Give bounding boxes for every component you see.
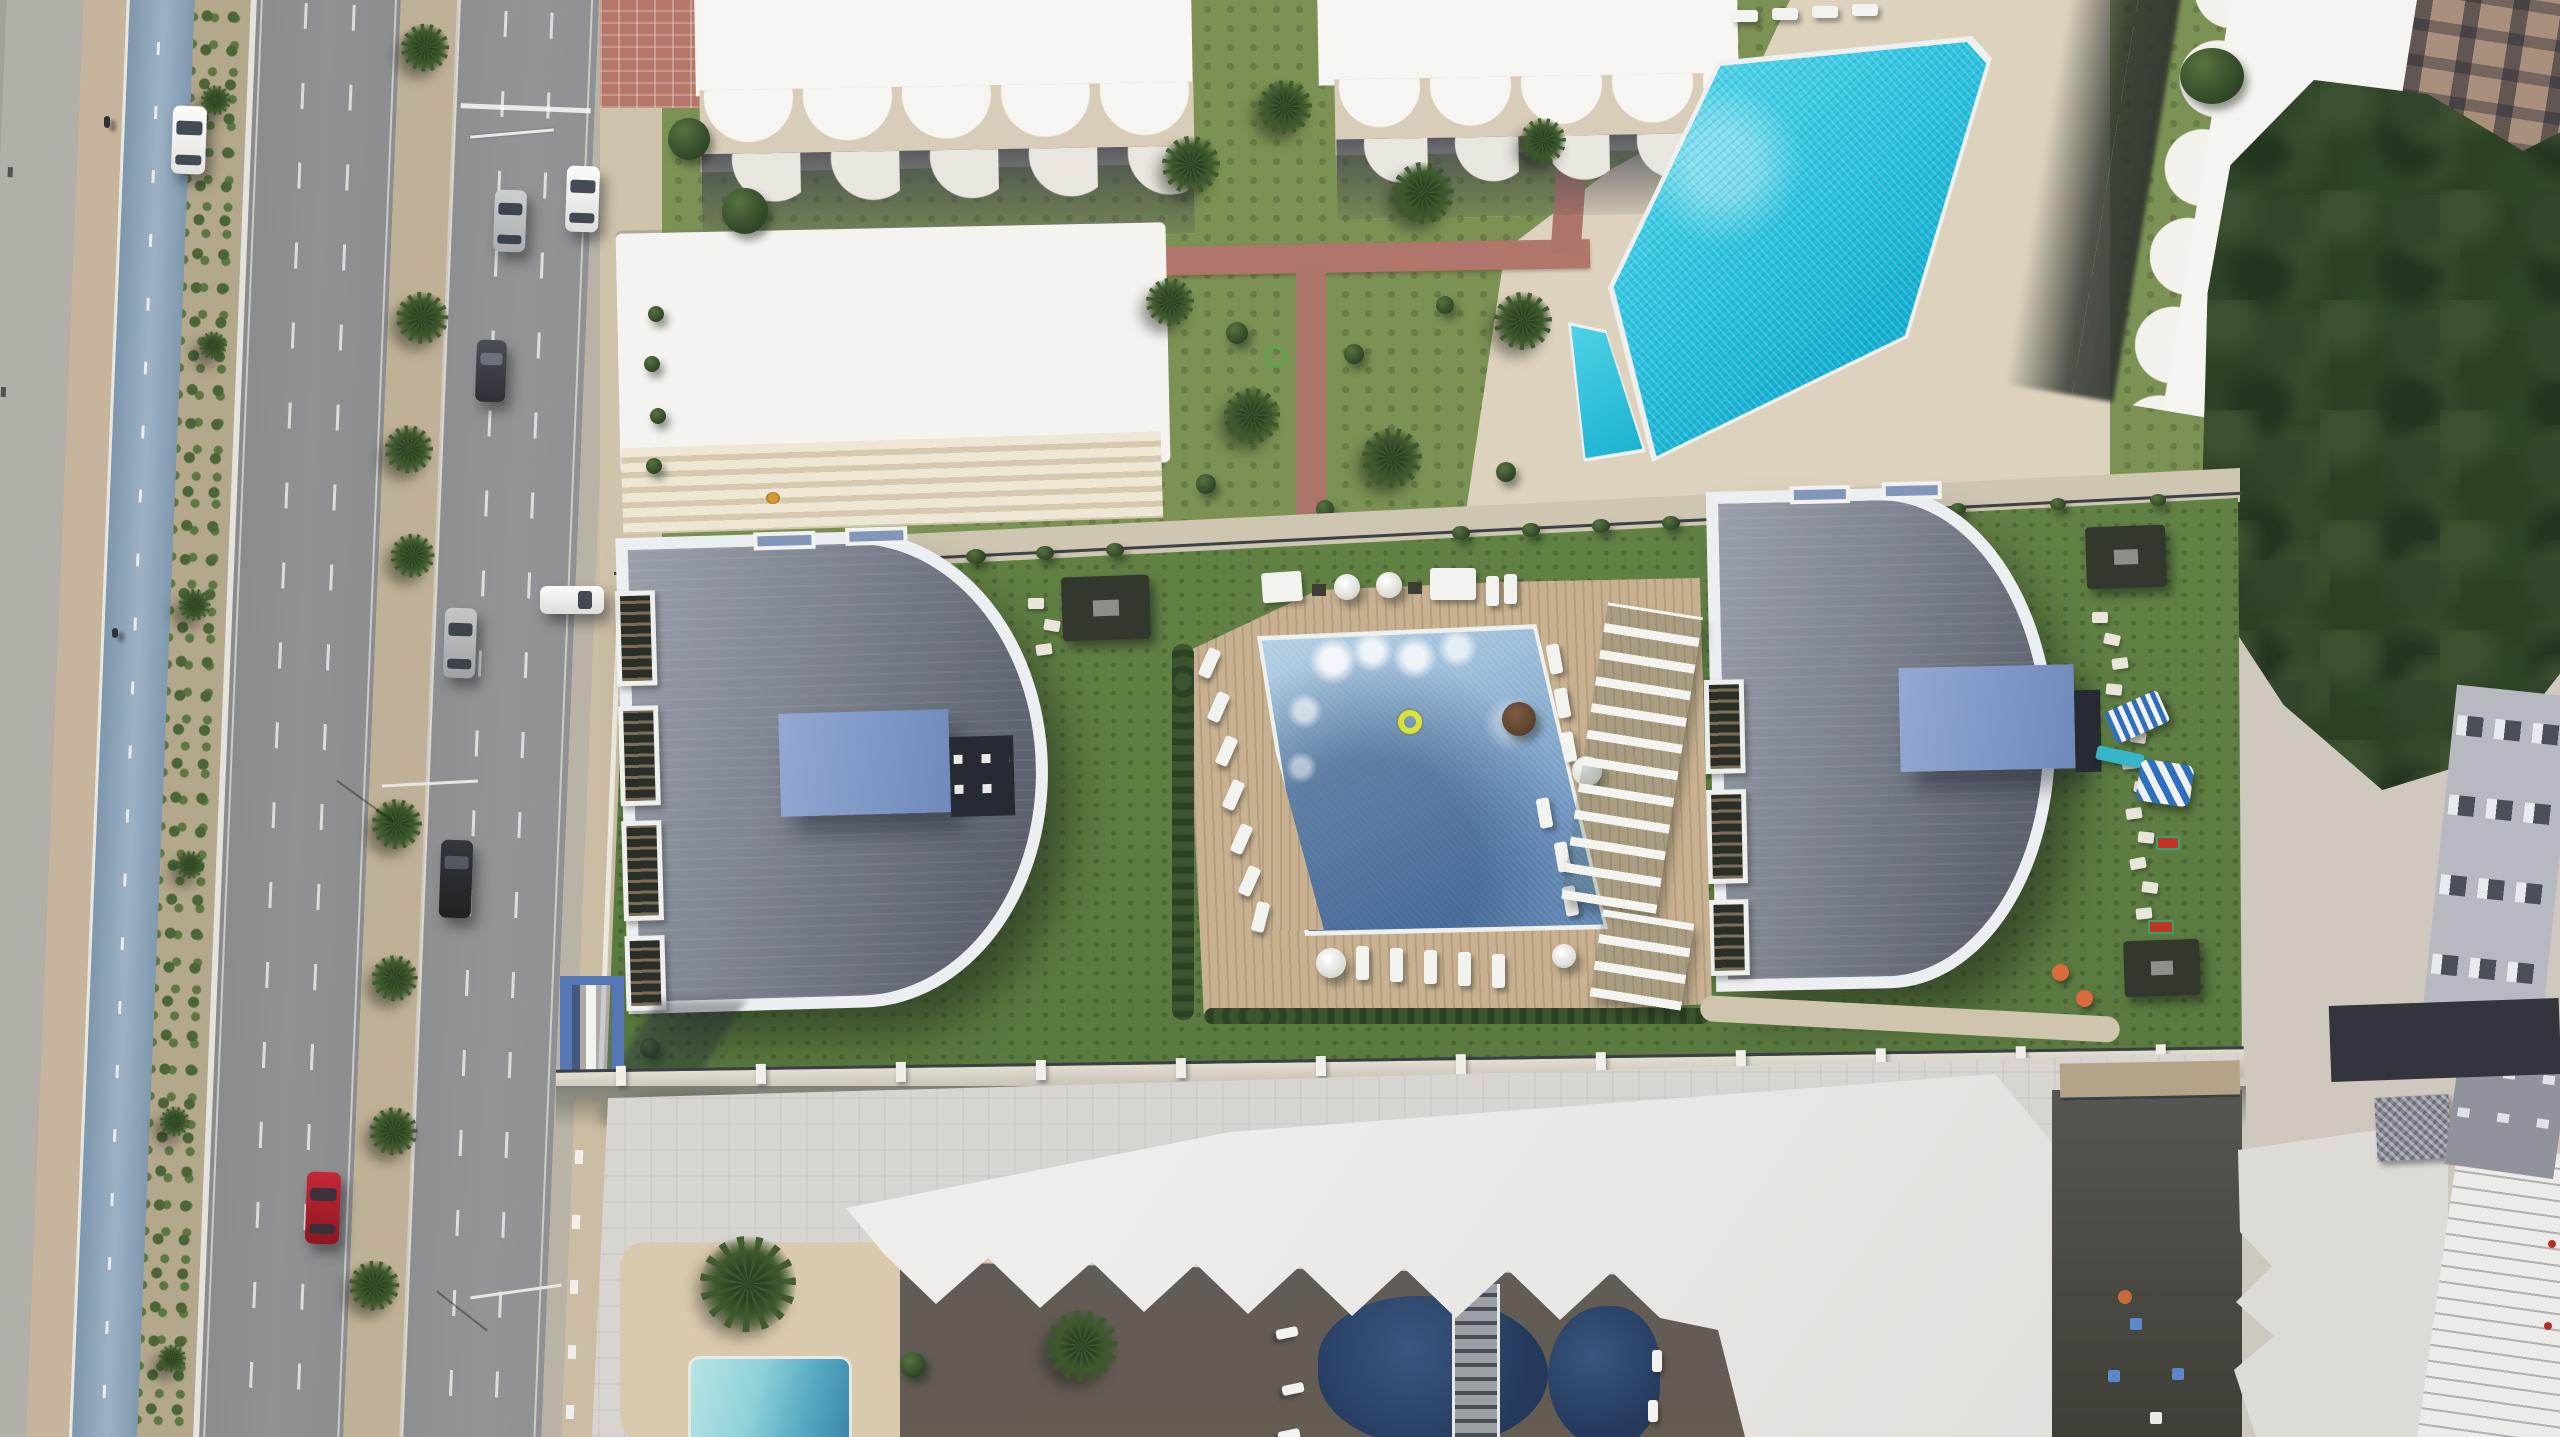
- car-glass: [447, 659, 471, 670]
- car-glass: [497, 235, 521, 245]
- lounger: [1424, 950, 1437, 984]
- palm-icon: [1392, 162, 1454, 224]
- wall-post: [896, 1062, 906, 1082]
- window-glass: [630, 940, 662, 1006]
- bush: [644, 356, 660, 372]
- cafe-table: [2108, 1370, 2120, 1382]
- hedge-bush: [1452, 526, 1470, 540]
- bush: [1436, 296, 1454, 314]
- car-white-parked-entrance: [540, 586, 604, 614]
- bench-red: [2156, 836, 2180, 850]
- car-black-driving: [439, 839, 474, 918]
- west-skylight: [845, 526, 907, 546]
- facade-windows: [2439, 874, 2552, 906]
- lounger: [1356, 946, 1369, 980]
- pergola-shades: [1590, 909, 1695, 1010]
- parasol: [1552, 944, 1576, 968]
- window-well: [1708, 899, 1750, 976]
- window-glass: [1711, 794, 1743, 879]
- bench-red: [2148, 920, 2174, 934]
- pergola-table: [2114, 549, 2139, 565]
- hedge-bush: [1592, 519, 1610, 533]
- hedge-bush: [1106, 543, 1124, 557]
- round-daybed: [1376, 572, 1402, 598]
- car-glass: [480, 353, 502, 366]
- stepping-stone: [1028, 598, 1044, 609]
- stepping-stone: [2092, 612, 2108, 623]
- stepping-stone: [2137, 831, 2154, 844]
- palm-icon: [1046, 1310, 1118, 1382]
- wicker-daybed: [1502, 702, 1536, 736]
- window-glass: [623, 710, 656, 801]
- kids-pool: [1556, 316, 1652, 466]
- car-silver-parked: [493, 189, 527, 252]
- aerial-photo: [0, 0, 2560, 1437]
- lounger: [1648, 1400, 1658, 1422]
- deck-table: [1312, 584, 1326, 596]
- stepping-stone: [2135, 907, 2152, 920]
- lounger: [1492, 954, 1505, 988]
- building-east: [1700, 476, 2096, 1004]
- lounger: [1812, 6, 1838, 18]
- curb-marker: [572, 1215, 580, 1229]
- cafe-table: [2172, 1368, 2184, 1380]
- pergola-east: [2085, 525, 2167, 590]
- building-b-steps: [621, 432, 1163, 535]
- garden-ring: [1264, 346, 1286, 368]
- stepping-stone: [2125, 807, 2142, 820]
- bush: [1196, 474, 1216, 494]
- window-well: [615, 590, 658, 686]
- flower-bed: [766, 492, 780, 504]
- cafe-table: [2130, 1318, 2142, 1330]
- stepping-stone: [2111, 657, 2128, 670]
- west-east-facade: [949, 735, 1015, 817]
- round-daybed: [1334, 574, 1360, 600]
- hedge-bush: [2150, 494, 2166, 506]
- kids-pool-water: [1560, 320, 1648, 462]
- hedge-strip-se: [2060, 1060, 2241, 1100]
- facade-windows: [2457, 1107, 2555, 1130]
- skylight-glass: [849, 530, 903, 542]
- window-well: [1706, 789, 1748, 884]
- south-kids-pool: [688, 1356, 852, 1437]
- bollard: [8, 167, 13, 177]
- pergola-south: [2123, 939, 2201, 998]
- pergola-west: [1061, 574, 1151, 641]
- pergola-table: [2151, 961, 2173, 976]
- palm-icon: [369, 1106, 419, 1156]
- pedestrian: [112, 628, 118, 638]
- east-skylight: [1790, 485, 1850, 504]
- cyclist: [104, 116, 110, 128]
- deck-table: [1408, 582, 1422, 594]
- lounger: [1458, 952, 1471, 986]
- window-well: [621, 820, 664, 921]
- east-east-facade: [2074, 690, 2102, 773]
- tree: [668, 118, 710, 160]
- car-silver-driving: [443, 607, 477, 678]
- car-glass: [444, 856, 468, 870]
- car-dark-parked: [475, 339, 507, 402]
- palm-icon: [1494, 292, 1552, 350]
- facade-windows: [2456, 715, 2560, 747]
- car-white-driving: [171, 105, 207, 174]
- east-dark-band: [2329, 998, 2560, 1082]
- wall-post: [1316, 1056, 1326, 1076]
- parasol: [1316, 948, 1346, 978]
- swim-ring: [1398, 710, 1422, 734]
- cafe-umbrella: [2118, 1290, 2132, 1304]
- stepping-stone: [2105, 683, 2122, 696]
- bush: [1344, 344, 1364, 364]
- red-marker: [2544, 1322, 2552, 1330]
- bush: [646, 458, 662, 474]
- palm-icon: [700, 1236, 796, 1332]
- wall-post: [616, 1066, 626, 1086]
- wall-post: [756, 1064, 766, 1084]
- car-glass: [176, 121, 202, 136]
- car-glass: [569, 213, 594, 224]
- bollard: [1, 387, 6, 397]
- skylight-glass: [757, 535, 811, 547]
- skylight-glass: [1886, 485, 1938, 496]
- bush: [900, 1352, 926, 1378]
- resort-pool-water: [1606, 36, 1994, 464]
- palm-icon: [1224, 388, 1280, 444]
- window-well: [1704, 679, 1746, 774]
- bush: [650, 408, 666, 424]
- skylight-glass: [1794, 489, 1846, 500]
- east-skylight: [1882, 481, 1942, 500]
- hedge-bush: [1662, 516, 1680, 530]
- car-glass: [310, 1188, 336, 1202]
- facade-windows: [954, 783, 1010, 794]
- building-a-roof: [694, 0, 1193, 96]
- south-pool-east: [1548, 1306, 1660, 1437]
- facade-windows: [954, 753, 1010, 764]
- roof-terrace-west: [778, 709, 951, 817]
- facade-windows: [2447, 794, 2560, 826]
- resort-pool: [1600, 30, 2000, 470]
- curb-marker: [575, 1150, 583, 1164]
- east-court-shaded: [2052, 1090, 2242, 1437]
- car-glass: [448, 623, 472, 637]
- car-glass: [570, 180, 595, 194]
- lounger: [1852, 4, 1878, 16]
- palm-icon: [1362, 428, 1422, 488]
- pergola-table: [1093, 600, 1120, 617]
- car-glass: [175, 155, 201, 166]
- roof-vent-grille: [2374, 1094, 2451, 1162]
- wall-post: [1456, 1054, 1466, 1074]
- tree-grove: [2200, 80, 2560, 790]
- window-glass: [1709, 684, 1741, 769]
- palm-icon: [1520, 118, 1566, 164]
- lounger: [1390, 948, 1403, 982]
- playground-tent: [2135, 758, 2194, 807]
- bush: [648, 306, 664, 322]
- deck-hedge: [1172, 644, 1194, 1020]
- car-white-parked: [565, 165, 600, 232]
- car-red-driving: [305, 1171, 341, 1244]
- wall-post: [1176, 1058, 1186, 1078]
- stepping-stone: [1035, 643, 1052, 656]
- red-marker: [2548, 1240, 2556, 1248]
- lounger: [1504, 574, 1517, 604]
- lounger: [1732, 10, 1758, 22]
- bush: [1226, 322, 1248, 344]
- west-skylight: [753, 531, 815, 551]
- deck-hedge: [1204, 1008, 1710, 1024]
- tree: [722, 188, 768, 234]
- bean-bag: [2076, 990, 2093, 1007]
- lounger: [1652, 1350, 1662, 1372]
- bush: [1496, 462, 1516, 482]
- window-well: [618, 705, 661, 806]
- hedge-bush: [1522, 523, 1540, 537]
- window-glass: [1713, 904, 1744, 971]
- car-glass: [578, 591, 592, 609]
- car-glass: [498, 203, 522, 216]
- bean-bag: [2052, 964, 2069, 981]
- palm-icon: [1146, 278, 1194, 326]
- palm-icon: [1162, 136, 1220, 194]
- lounger: [1486, 576, 1499, 606]
- window-glass: [626, 825, 659, 916]
- palm-icon: [1258, 80, 1312, 134]
- daybed: [1261, 571, 1303, 604]
- curb-marker: [566, 1405, 574, 1419]
- window-glass: [620, 595, 652, 681]
- curb-marker: [570, 1280, 578, 1294]
- wall-post: [1036, 1060, 1046, 1080]
- car-glass: [309, 1224, 335, 1235]
- tree: [2180, 48, 2244, 104]
- curb-marker: [568, 1345, 576, 1359]
- facade-windows: [2431, 954, 2544, 986]
- wall-post: [1596, 1052, 1606, 1072]
- cafe-table: [2150, 1412, 2162, 1424]
- building-west: [613, 522, 1077, 1026]
- lounger: [1772, 8, 1798, 20]
- roof-terrace-east: [1898, 664, 2075, 772]
- stepping-stone: [2141, 881, 2158, 894]
- daybed: [1430, 568, 1476, 600]
